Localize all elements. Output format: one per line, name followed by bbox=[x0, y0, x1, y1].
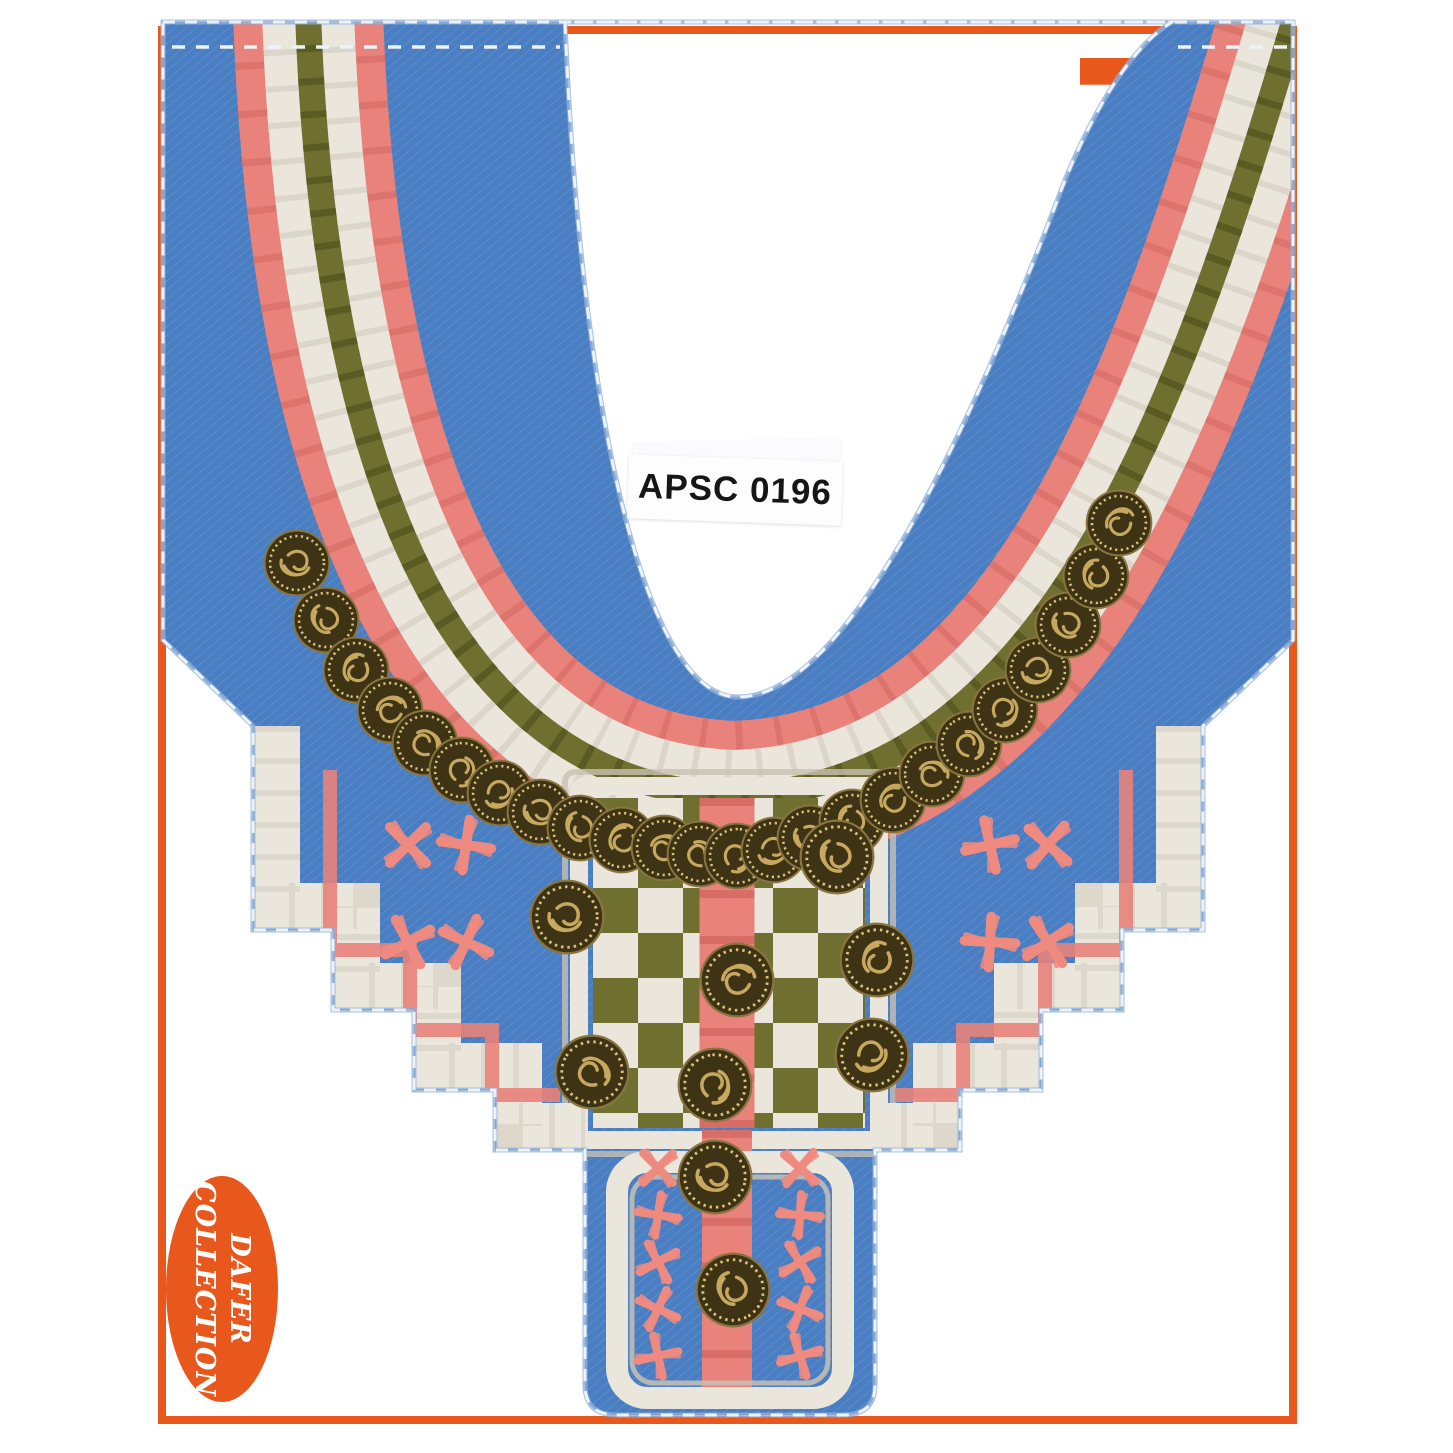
coin-icon bbox=[265, 531, 330, 596]
product-photo: F ernández DAFER COLLECTION bbox=[0, 0, 1453, 1453]
label-sticker: APSC 0196 bbox=[627, 454, 843, 525]
coin-icon bbox=[531, 881, 604, 954]
collar-fabric bbox=[0, 0, 1453, 1453]
label-text: APSC 0196 bbox=[637, 467, 832, 514]
